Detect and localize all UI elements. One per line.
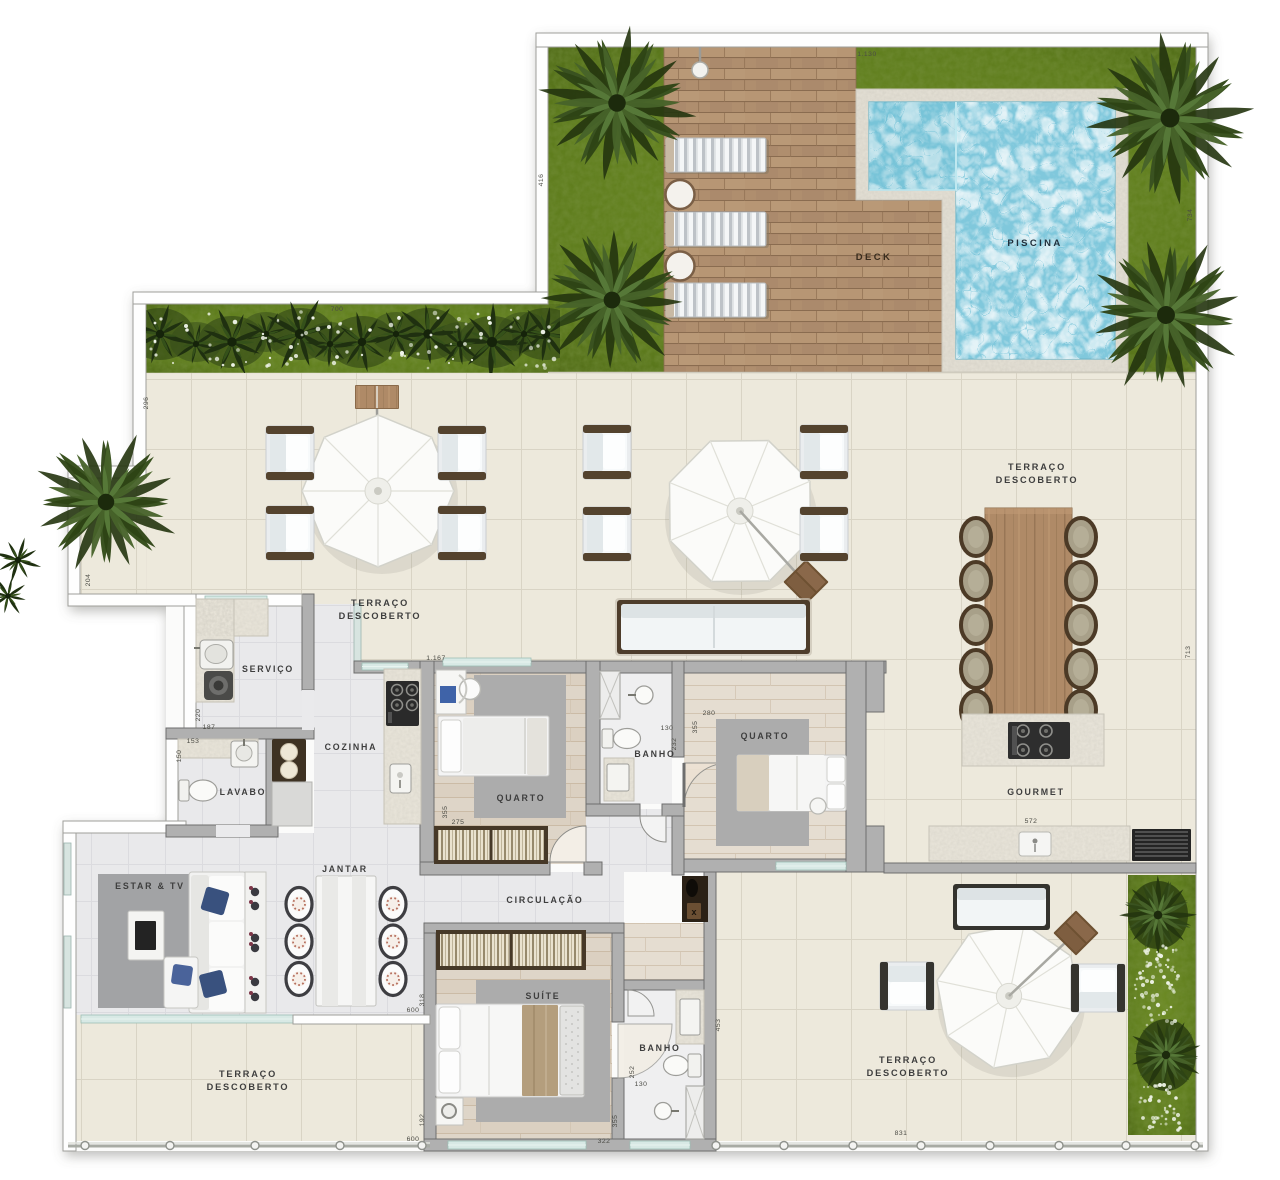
svg-text:DESCOBERTO: DESCOBERTO bbox=[339, 611, 422, 621]
svg-text:TERRAÇO: TERRAÇO bbox=[219, 1069, 277, 1079]
svg-text:187: 187 bbox=[203, 724, 216, 731]
svg-text:831: 831 bbox=[895, 1130, 908, 1137]
svg-text:318: 318 bbox=[419, 994, 426, 1007]
svg-text:LAVABO: LAVABO bbox=[220, 787, 267, 797]
svg-text:TERRAÇO: TERRAÇO bbox=[351, 598, 409, 608]
svg-text:355: 355 bbox=[442, 806, 449, 819]
svg-text:296: 296 bbox=[143, 397, 150, 410]
svg-text:BANHO: BANHO bbox=[639, 1043, 680, 1053]
svg-text:QUARTO: QUARTO bbox=[497, 793, 546, 803]
svg-text:x: x bbox=[691, 907, 696, 917]
svg-text:TERRAÇO: TERRAÇO bbox=[879, 1055, 937, 1065]
svg-text:192: 192 bbox=[419, 1114, 426, 1127]
svg-text:453: 453 bbox=[715, 1019, 722, 1032]
svg-text:ESTAR & TV: ESTAR & TV bbox=[115, 881, 185, 891]
svg-text:BANHO: BANHO bbox=[634, 749, 675, 759]
svg-text:232: 232 bbox=[671, 738, 678, 751]
svg-text:DESCOBERTO: DESCOBERTO bbox=[207, 1082, 290, 1092]
svg-text:1.130: 1.130 bbox=[857, 51, 877, 58]
svg-text:TERRAÇO: TERRAÇO bbox=[1008, 462, 1066, 472]
svg-text:275: 275 bbox=[452, 819, 465, 826]
svg-text:DESCOBERTO: DESCOBERTO bbox=[996, 475, 1079, 485]
svg-text:355: 355 bbox=[692, 721, 699, 734]
svg-text:150: 150 bbox=[176, 750, 183, 763]
svg-text:572: 572 bbox=[1025, 818, 1038, 825]
svg-text:322: 322 bbox=[598, 1138, 611, 1145]
svg-text:700: 700 bbox=[331, 306, 344, 313]
svg-text:DECK: DECK bbox=[856, 252, 893, 263]
svg-text:SERVIÇO: SERVIÇO bbox=[242, 664, 294, 674]
svg-text:JANTAR: JANTAR bbox=[322, 864, 368, 874]
svg-text:220: 220 bbox=[195, 709, 202, 722]
svg-text:CIRCULAÇÃO: CIRCULAÇÃO bbox=[506, 895, 583, 905]
svg-text:DESCOBERTO: DESCOBERTO bbox=[867, 1068, 950, 1078]
svg-text:416: 416 bbox=[538, 174, 545, 187]
svg-text:600: 600 bbox=[407, 1136, 420, 1143]
svg-text:1.167: 1.167 bbox=[426, 655, 446, 662]
svg-text:713: 713 bbox=[1185, 646, 1192, 659]
svg-text:280: 280 bbox=[703, 710, 716, 717]
svg-text:204: 204 bbox=[85, 574, 92, 587]
svg-text:153: 153 bbox=[187, 738, 200, 745]
svg-text:SUÍTE: SUÍTE bbox=[526, 991, 561, 1001]
svg-text:130: 130 bbox=[635, 1081, 648, 1088]
svg-text:355: 355 bbox=[612, 1115, 619, 1128]
svg-text:252: 252 bbox=[629, 1066, 636, 1079]
svg-text:QUARTO: QUARTO bbox=[741, 731, 790, 741]
svg-text:600: 600 bbox=[407, 1007, 420, 1014]
svg-text:130: 130 bbox=[661, 725, 674, 732]
svg-text:GOURMET: GOURMET bbox=[1007, 787, 1065, 797]
svg-text:COZINHA: COZINHA bbox=[325, 742, 378, 752]
svg-text:734: 734 bbox=[1187, 209, 1194, 222]
svg-text:PISCINA: PISCINA bbox=[1007, 238, 1062, 249]
